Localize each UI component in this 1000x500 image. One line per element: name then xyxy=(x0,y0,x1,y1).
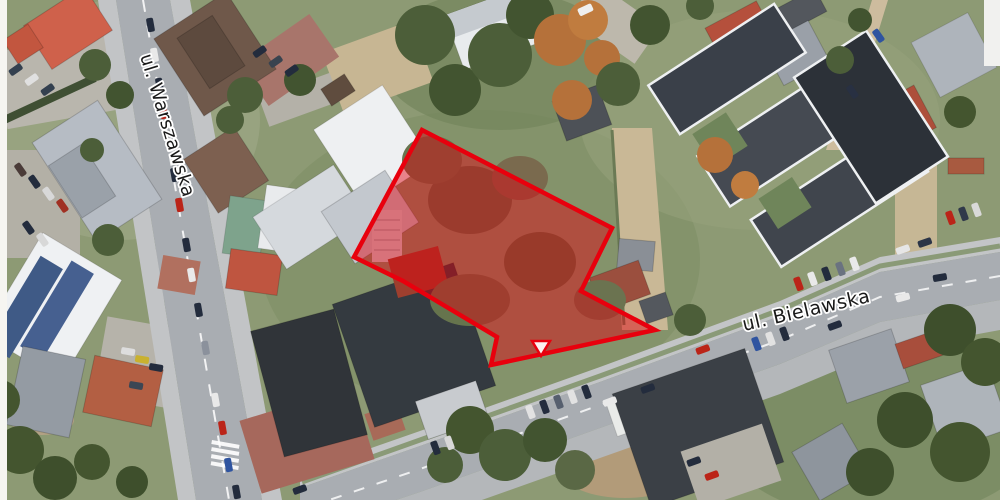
aerial-map: ul. Warszawska ul. Bielawska xyxy=(0,0,1000,500)
map-edge-strip xyxy=(0,0,7,500)
map-canvas: ul. Warszawska ul. Bielawska xyxy=(0,0,1000,500)
